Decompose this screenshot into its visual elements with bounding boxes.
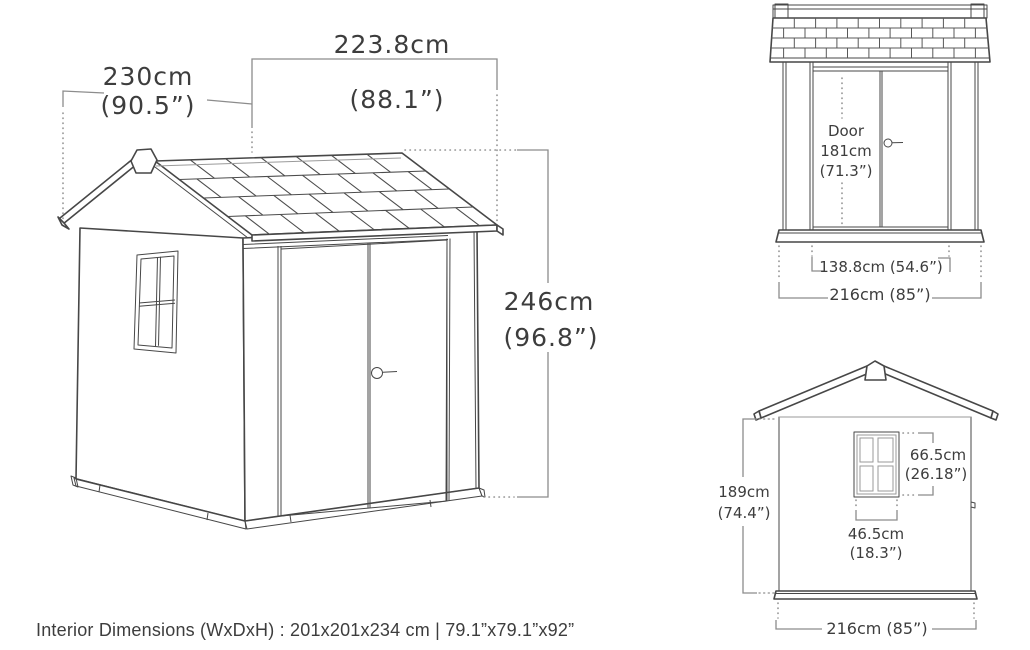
dim-door-width: 138.8cm (54.6”)	[812, 246, 950, 276]
gable-fascia-left	[60, 158, 137, 224]
dim-wnw-bracket	[856, 510, 897, 520]
ridge-cap	[131, 149, 157, 173]
side-window-outer	[854, 432, 899, 497]
side-window-inner	[857, 435, 896, 494]
dim-side-overall: 216cm (85”)	[776, 603, 976, 638]
roof-width-cm-label: 223.8cm	[334, 30, 451, 59]
window-height-cm-label: 66.5cm	[910, 446, 966, 464]
dim-fo-bracket-right	[932, 282, 981, 298]
roof-rail-tab-left	[775, 4, 788, 19]
side-window-pane-tr	[878, 438, 893, 462]
roof-rail-tab-right	[971, 4, 984, 19]
height-in-label: (96.8”)	[503, 323, 598, 352]
wall-height-in-label: (74.4”)	[718, 504, 771, 522]
side-wall-notch	[971, 502, 975, 508]
dim-so-bracket-left	[776, 620, 822, 629]
side-roof-tip-right	[991, 411, 998, 420]
window-height-in-label: (26.18”)	[905, 465, 967, 483]
side-wall	[774, 417, 977, 599]
side-window-pane-br	[878, 466, 893, 491]
roof-width-in-label: (88.1”)	[349, 85, 444, 114]
front-roof-band	[770, 4, 990, 62]
window-width-in-label: (18.3”)	[850, 544, 903, 562]
eave-end-cap	[497, 225, 503, 235]
side-window	[854, 432, 899, 497]
dim-wall-height: 189cm (74.4”)	[718, 419, 777, 593]
window-width-cm-label: 46.5cm	[848, 525, 904, 543]
dim-wnh-corner-top	[918, 433, 933, 443]
side-overall-width-label: 216cm (85”)	[826, 619, 927, 638]
height-cm-label: 246cm	[504, 287, 595, 316]
dim-so-bracket-right	[932, 620, 976, 629]
side-roof-peak-cap	[865, 361, 886, 380]
roof-top-rail	[773, 5, 987, 18]
side-roof-bar-left	[759, 366, 869, 418]
front-overall-width-label: 216cm (85”)	[829, 285, 930, 304]
side-wall-rect	[779, 417, 971, 591]
front-pillar-left	[783, 62, 813, 230]
front-door-handle-icon	[884, 139, 892, 147]
dim-wnh-corner-bottom	[918, 486, 933, 495]
depth-in-label: (90.5”)	[100, 91, 195, 120]
side-roof	[754, 361, 998, 420]
diagram-canvas: 230cm (90.5”) 223.8cm (88.1”) 246cm (96.…	[0, 0, 1030, 650]
shed-roof	[58, 149, 503, 241]
door-height-in-label: (71.3”)	[820, 162, 873, 180]
side-window-pane-tl	[860, 438, 873, 462]
isometric-view: 230cm (90.5”) 223.8cm (88.1”) 246cm (96.…	[58, 30, 599, 529]
side-view: 189cm (74.4”) 66.5cm (26.18”) 46.5cm (18…	[718, 361, 998, 638]
wall-height-cm-label: 189cm	[718, 483, 770, 501]
front-view: Door 181cm (71.3”) 138.8cm (54.6”) 216cm…	[770, 4, 990, 304]
side-window-pane-bl	[860, 466, 873, 491]
front-pillar-right	[948, 62, 978, 230]
dim-window-height: 66.5cm (26.18”)	[903, 433, 967, 495]
interior-dimensions-text: Interior Dimensions (WxDxH) : 201x201x23…	[36, 620, 574, 640]
front-door: Door 181cm (71.3”)	[813, 71, 948, 227]
dim-wh-line-bottom	[743, 526, 757, 593]
skid-cap-right	[479, 488, 485, 497]
door-height-cm-label: 181cm	[820, 142, 872, 160]
front-door-top-rail	[813, 67, 948, 71]
front-door-split	[880, 71, 882, 227]
depth-cm-label: 230cm	[103, 62, 194, 91]
dim-wh-line-top	[743, 419, 757, 477]
front-plinth	[776, 230, 984, 242]
dim-window-width: 46.5cm (18.3”)	[848, 500, 904, 562]
door-label: Door	[828, 122, 865, 140]
dim-fo-bracket-left	[779, 282, 828, 298]
shed-dimensions-diagram: 230cm (90.5”) 223.8cm (88.1”) 246cm (96.…	[0, 0, 1030, 650]
side-roof-bar-right	[883, 366, 993, 418]
side-plinth	[774, 591, 977, 599]
door-width-label: 138.8cm (54.6”)	[819, 258, 942, 276]
